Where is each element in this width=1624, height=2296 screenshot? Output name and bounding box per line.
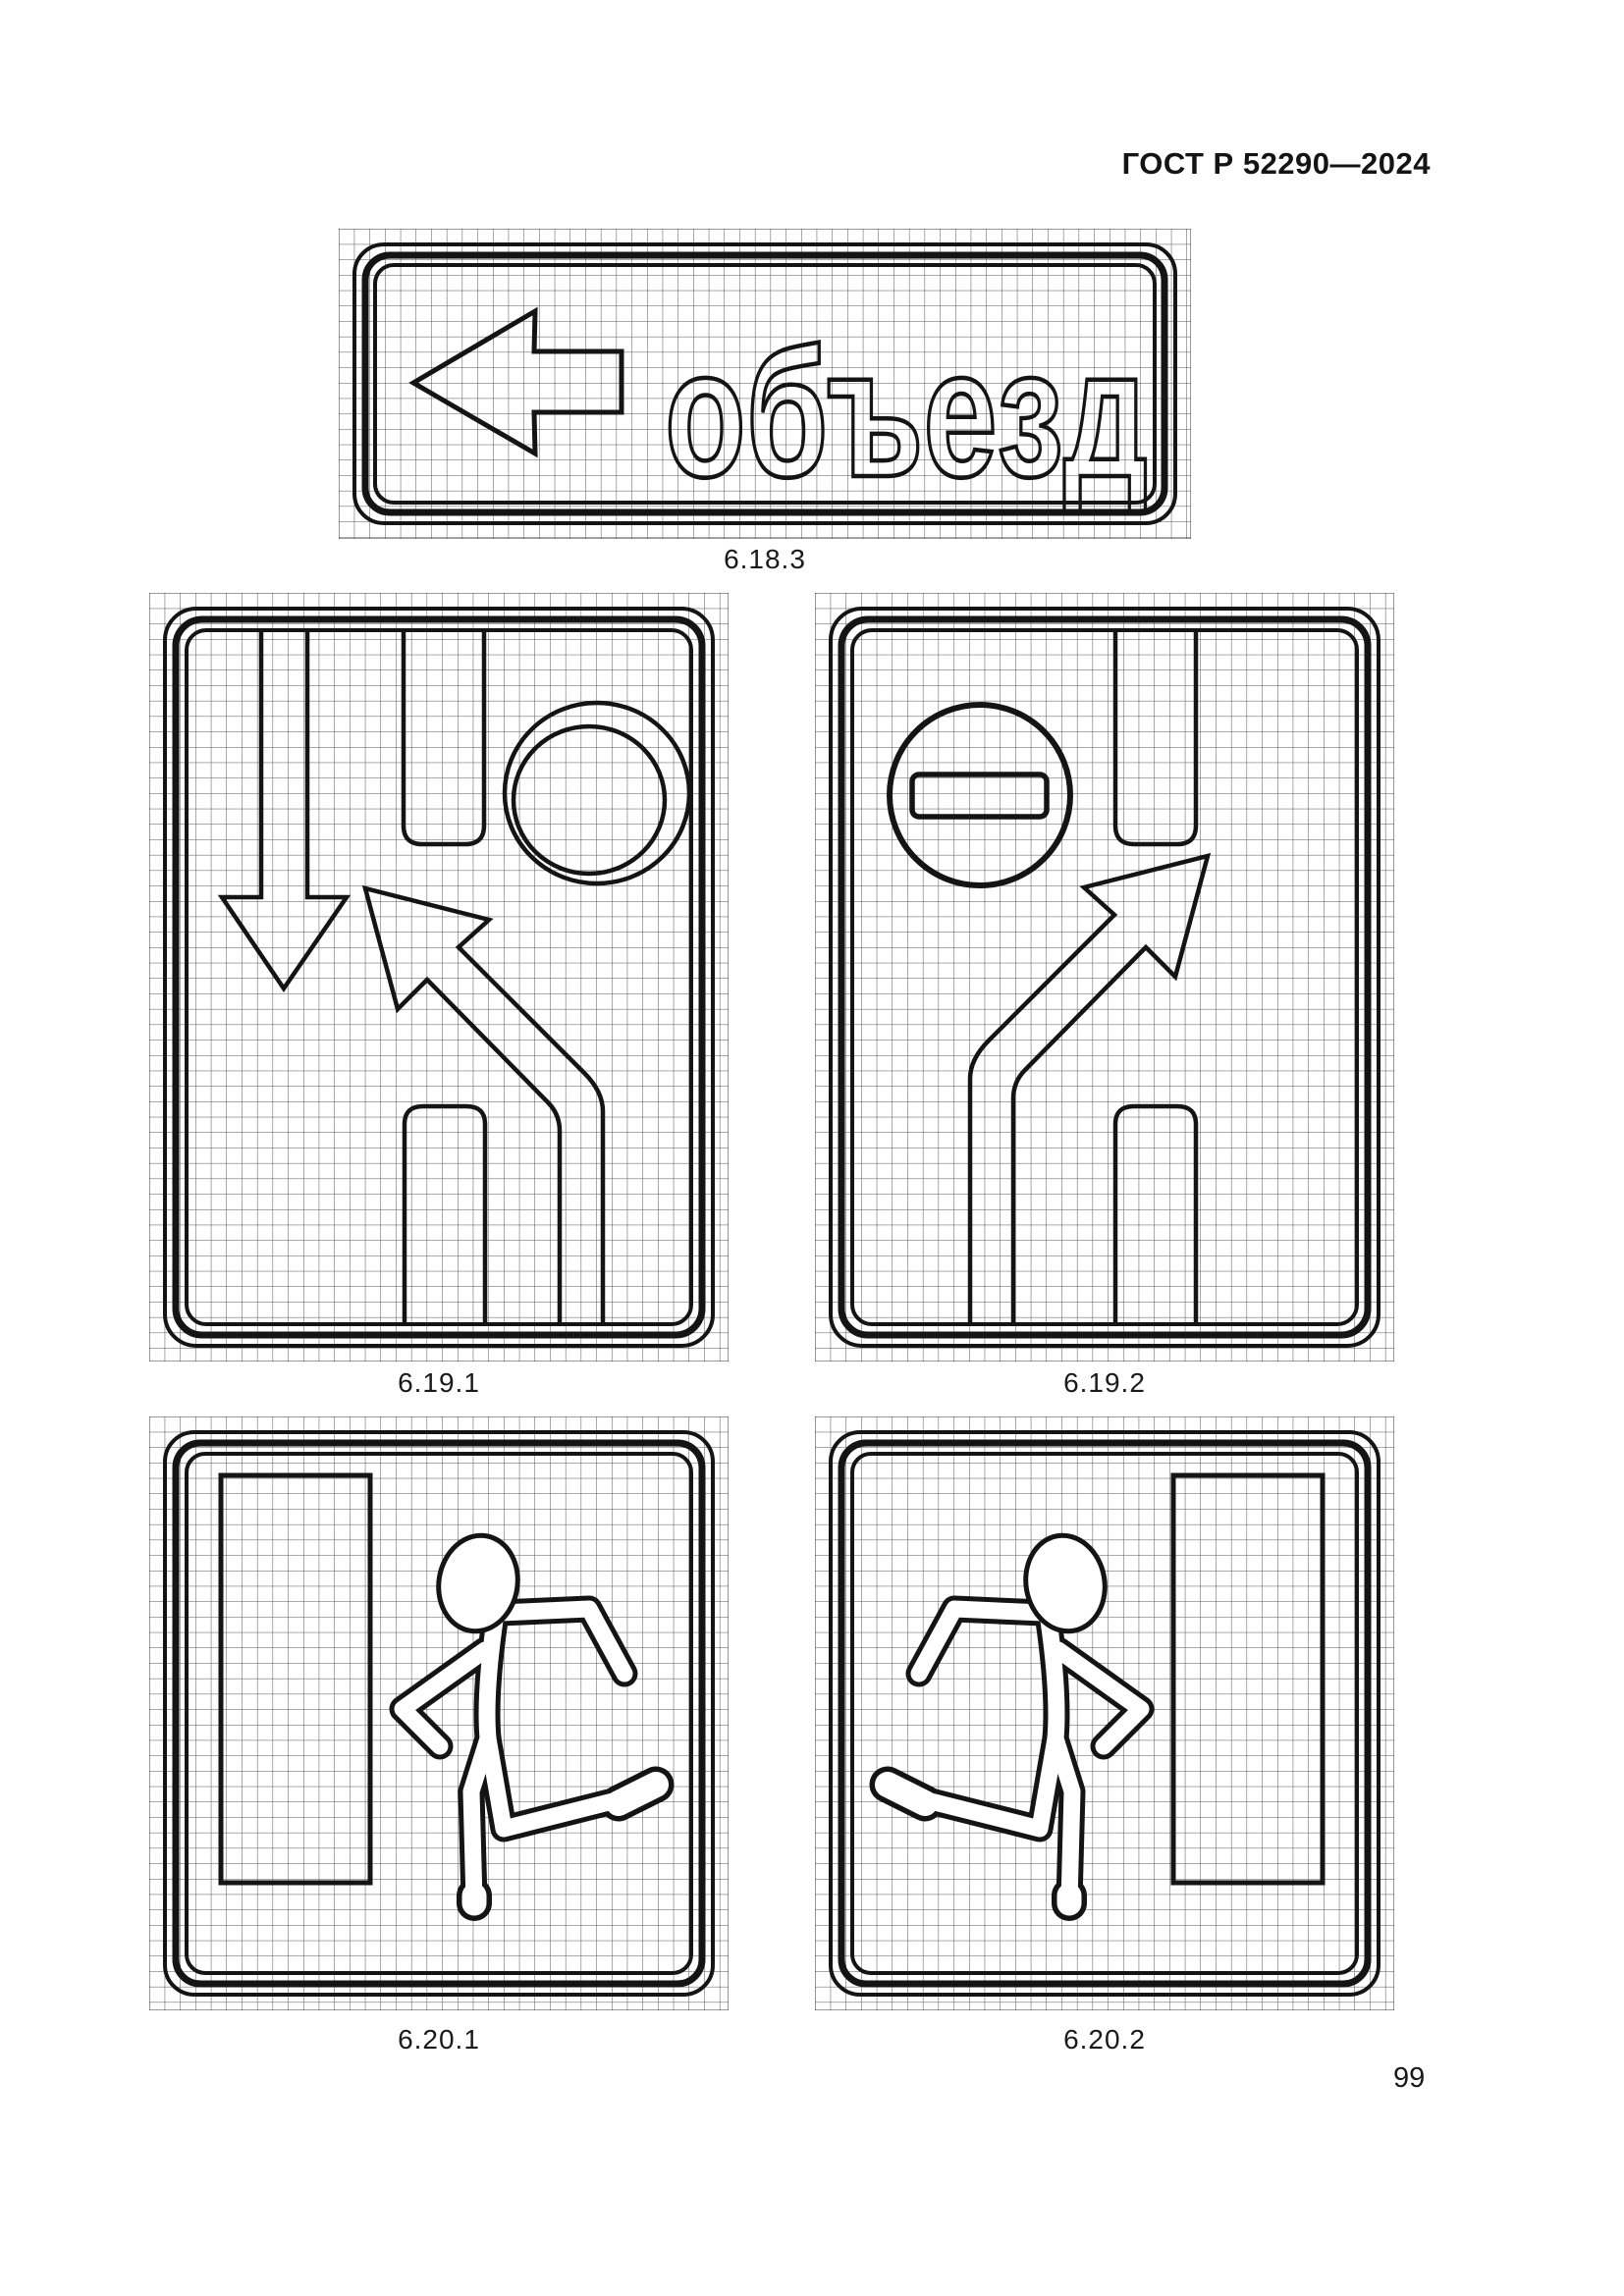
document-page: ГОСТ Р 52290—2024 объезд 6.18.3 bbox=[0, 0, 1624, 2296]
sign-text-detour: объезд bbox=[665, 312, 1148, 515]
sign-6-19-1-drawing bbox=[149, 593, 729, 1362]
grid-background bbox=[149, 1416, 729, 2010]
grid-background bbox=[815, 1416, 1394, 2010]
standard-header: ГОСТ Р 52290—2024 bbox=[1122, 146, 1431, 182]
sign-label-6-18-3: 6.18.3 bbox=[339, 544, 1191, 575]
sign-label-6-19-1: 6.19.1 bbox=[149, 1367, 729, 1399]
grid-background bbox=[149, 593, 729, 1362]
sign-6-20-2-drawing bbox=[815, 1416, 1394, 2010]
figure-sign-6-20-2 bbox=[815, 1416, 1394, 2010]
figure-sign-6-19-1 bbox=[149, 593, 729, 1362]
grid-background bbox=[815, 593, 1394, 1362]
sign-label-6-20-1: 6.20.1 bbox=[149, 2024, 729, 2056]
figure-sign-6-20-1 bbox=[149, 1416, 729, 2010]
sign-6-18-3-drawing: объезд bbox=[339, 229, 1191, 539]
sign-6-19-2-drawing bbox=[815, 593, 1394, 1362]
figure-sign-6-18-3: объезд bbox=[339, 229, 1191, 539]
sign-6-20-1-drawing bbox=[149, 1416, 729, 2010]
page-number: 99 bbox=[1393, 2062, 1425, 2095]
figure-sign-6-19-2 bbox=[815, 593, 1394, 1362]
sign-label-6-20-2: 6.20.2 bbox=[815, 2024, 1394, 2056]
sign-label-6-19-2: 6.19.2 bbox=[815, 1367, 1394, 1399]
